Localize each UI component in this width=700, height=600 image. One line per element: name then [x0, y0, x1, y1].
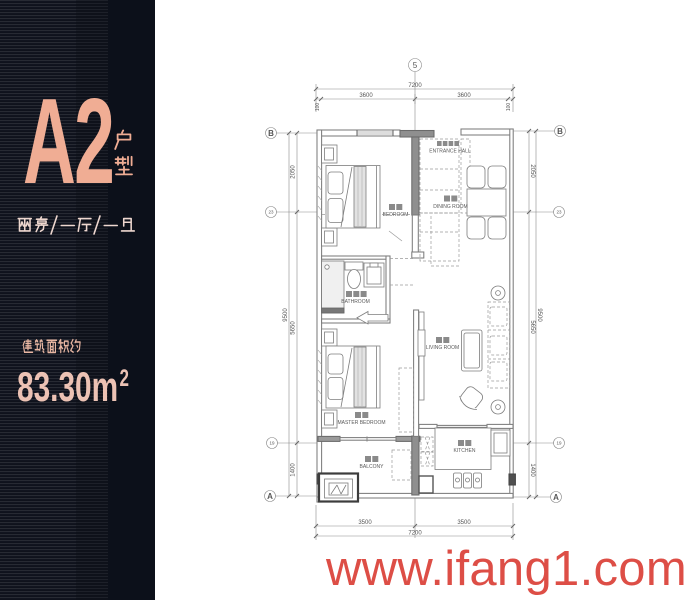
svg-text:5: 5	[413, 61, 418, 70]
svg-text:3500: 3500	[457, 520, 471, 526]
svg-text:BATHROOM: BATHROOM	[341, 299, 370, 305]
svg-text:BEDROOM: BEDROOM	[383, 212, 409, 218]
svg-text:3600: 3600	[359, 93, 373, 99]
svg-text:5650: 5650	[529, 320, 535, 334]
svg-text:ENTRANCE HALL: ENTRANCE HALL	[429, 149, 471, 155]
svg-text:9500: 9500	[536, 308, 542, 322]
svg-text:BALCONY: BALCONY	[360, 464, 385, 470]
svg-text:1400: 1400	[291, 463, 297, 477]
svg-text:3600: 3600	[457, 93, 471, 99]
svg-text:7200: 7200	[408, 531, 422, 537]
svg-text:100: 100	[506, 103, 512, 112]
svg-text:19: 19	[269, 441, 275, 446]
svg-text:A: A	[267, 492, 273, 501]
svg-text:A: A	[553, 493, 559, 502]
svg-text:B: B	[557, 127, 563, 136]
svg-text:3500: 3500	[358, 520, 372, 526]
svg-text:KITCHEN: KITCHEN	[454, 448, 476, 454]
svg-text:LIVING ROOM: LIVING ROOM	[426, 345, 459, 351]
svg-text:DINING ROOM: DINING ROOM	[433, 204, 467, 210]
svg-text:1400: 1400	[529, 463, 535, 477]
svg-text:5650: 5650	[291, 321, 297, 335]
svg-text:B: B	[268, 129, 274, 138]
svg-text:MASTER BEDROOM: MASTER BEDROOM	[337, 420, 385, 426]
svg-text:100: 100	[315, 103, 321, 112]
svg-text:7200: 7200	[408, 83, 422, 89]
svg-text:19: 19	[556, 441, 562, 446]
svg-text:23: 23	[268, 210, 274, 215]
svg-text:2050: 2050	[529, 164, 535, 178]
svg-text:2050: 2050	[291, 165, 297, 179]
svg-text:23: 23	[556, 210, 562, 215]
svg-text:9500: 9500	[283, 308, 289, 322]
